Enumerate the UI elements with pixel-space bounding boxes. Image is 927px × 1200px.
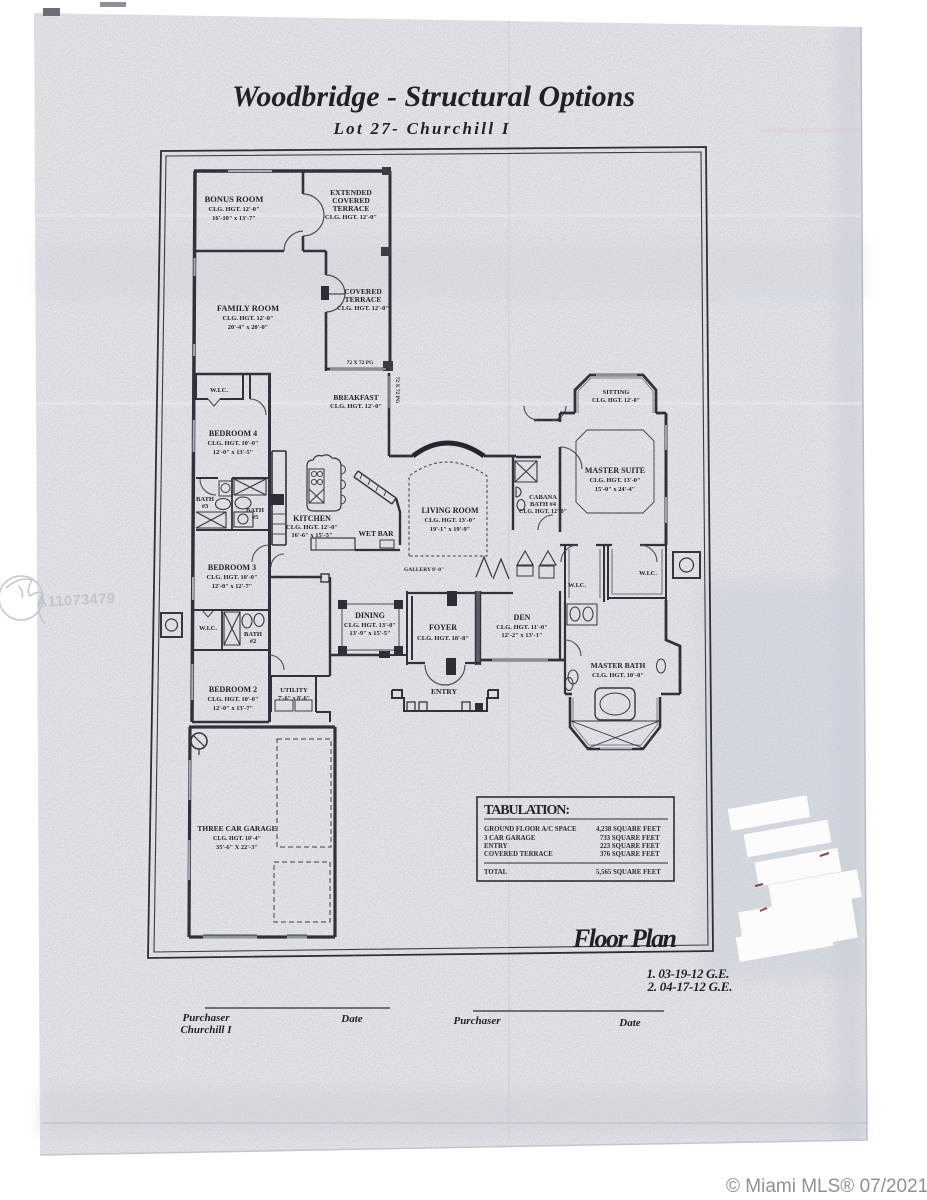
svg-text:CABANA: CABANA bbox=[529, 494, 557, 501]
svg-text:CLG. HGT. 11'-0": CLG. HGT. 11'-0" bbox=[496, 624, 548, 631]
svg-text:#2: #2 bbox=[250, 638, 257, 645]
svg-text:CLG. HGT. 10'-0": CLG. HGT. 10'-0" bbox=[207, 440, 258, 447]
svg-text:MASTER BATH: MASTER BATH bbox=[591, 661, 646, 670]
svg-text:TOTAL: TOTAL bbox=[484, 869, 508, 876]
svg-text:FOYER: FOYER bbox=[429, 623, 457, 632]
svg-text:© Miami MLS® 07/2021: © Miami MLS® 07/2021 bbox=[726, 1176, 927, 1197]
svg-text:BONUS ROOM: BONUS ROOM bbox=[205, 194, 264, 204]
svg-text:BATH: BATH bbox=[246, 507, 264, 514]
svg-text:BATH: BATH bbox=[244, 631, 262, 638]
svg-text:Date: Date bbox=[618, 1017, 641, 1029]
svg-text:35'-6" X 22'-3": 35'-6" X 22'-3" bbox=[216, 844, 258, 851]
svg-text:4,238 SQUARE FEET: 4,238 SQUARE FEET bbox=[596, 826, 661, 833]
svg-text:733 SQUARE FEET: 733 SQUARE FEET bbox=[600, 835, 660, 842]
svg-text:376 SQUARE FEET: 376 SQUARE FEET bbox=[600, 851, 660, 858]
svg-text:BATH: BATH bbox=[196, 496, 214, 503]
svg-text:W.I.C.: W.I.C. bbox=[639, 570, 657, 577]
svg-text:CLG. HGT. 12'-0": CLG. HGT. 12'-0" bbox=[330, 403, 382, 410]
svg-text:CLG. HGT. 12'-0": CLG. HGT. 12'-0" bbox=[208, 206, 259, 213]
svg-text:CLG. HGT. 12'-0": CLG. HGT. 12'-0" bbox=[286, 524, 338, 531]
svg-text:W.I.C.: W.I.C. bbox=[568, 582, 586, 589]
svg-text:2. 04-17-12 G.E.: 2. 04-17-12 G.E. bbox=[647, 979, 733, 994]
svg-text:CLG. HGT. 13'-0": CLG. HGT. 13'-0" bbox=[589, 477, 640, 484]
svg-text:GROUND FLOOR A/C SPACE: GROUND FLOOR A/C SPACE bbox=[484, 826, 577, 833]
svg-text:BATH #4: BATH #4 bbox=[530, 501, 557, 508]
svg-text:Purchaser: Purchaser bbox=[182, 1012, 230, 1024]
svg-text:THREE CAR GARAGE: THREE CAR GARAGE bbox=[197, 824, 276, 833]
svg-text:TABULATION:: TABULATION: bbox=[484, 803, 570, 818]
svg-text:CLG. HGT. 10'-0": CLG. HGT. 10'-0" bbox=[592, 672, 644, 679]
svg-text:13'-9" x 15'-5": 13'-9" x 15'-5" bbox=[349, 630, 390, 637]
svg-text:FAMILY ROOM: FAMILY ROOM bbox=[217, 303, 279, 313]
svg-text:Date: Date bbox=[340, 1013, 363, 1025]
svg-text:CLG. HGT. 12'-0": CLG. HGT. 12'-0" bbox=[337, 305, 389, 312]
svg-text:ENTRY: ENTRY bbox=[431, 687, 458, 696]
svg-text:19'-1" x 19'-9": 19'-1" x 19'-9" bbox=[430, 526, 470, 533]
svg-text:BEDROOM 3: BEDROOM 3 bbox=[208, 563, 256, 572]
svg-text:BREAKFAST: BREAKFAST bbox=[333, 393, 378, 402]
svg-text:7'-6" x 8'-6": 7'-6" x 8'-6" bbox=[278, 696, 310, 702]
svg-text:15'-0" x 24'-4": 15'-0" x 24'-4" bbox=[595, 486, 635, 493]
svg-text:ENTRY: ENTRY bbox=[484, 843, 508, 850]
svg-text:12'-0" x 13'-7": 12'-0" x 13'-7" bbox=[213, 705, 253, 712]
svg-text:12'-0" x 13'-5": 12'-0" x 13'-5" bbox=[213, 449, 253, 456]
svg-text:Floor Plan: Floor Plan bbox=[572, 924, 677, 953]
svg-text:Purchaser: Purchaser bbox=[453, 1015, 501, 1027]
svg-text:CLG. HGT. 10'-0": CLG. HGT. 10'-0" bbox=[207, 696, 258, 703]
svg-text:CLG. HGT. 13'-0": CLG. HGT. 13'-0" bbox=[344, 622, 396, 629]
svg-text:DEN: DEN bbox=[514, 613, 531, 622]
svg-text:TERRACE: TERRACE bbox=[345, 295, 382, 304]
svg-text:5,565 SQUARE FEET: 5,565 SQUARE FEET bbox=[596, 869, 661, 876]
svg-text:KITCHEN: KITCHEN bbox=[293, 514, 331, 523]
svg-text:BEDROOM 2: BEDROOM 2 bbox=[209, 685, 257, 694]
svg-text:W.I.C.: W.I.C. bbox=[210, 387, 228, 394]
svg-text:TERRACE: TERRACE bbox=[333, 204, 370, 213]
svg-text:COVERED TERRACE: COVERED TERRACE bbox=[484, 851, 553, 858]
svg-text:CLG. HGT. 12'-0": CLG. HGT. 12'-0" bbox=[325, 214, 377, 221]
svg-text:Churchill I: Churchill I bbox=[180, 1024, 232, 1036]
svg-text:CLG. HGT. 12'-0": CLG. HGT. 12'-0" bbox=[222, 315, 273, 322]
svg-text:BEDROOM 4: BEDROOM 4 bbox=[209, 429, 257, 438]
svg-text:16'-10" x 13'-7": 16'-10" x 13'-7" bbox=[212, 215, 256, 222]
svg-text:72 X 72 PG: 72 X 72 PG bbox=[394, 377, 400, 404]
svg-text:12'-0" x 12'-7": 12'-0" x 12'-7" bbox=[212, 583, 252, 590]
svg-text:SITTING: SITTING bbox=[603, 389, 630, 396]
svg-text:DINING: DINING bbox=[355, 611, 385, 620]
svg-text:3 CAR GARAGE: 3 CAR GARAGE bbox=[484, 835, 536, 842]
svg-text:WET BAR: WET BAR bbox=[358, 529, 394, 538]
svg-text:MASTER SUITE: MASTER SUITE bbox=[585, 466, 645, 475]
svg-text:W.I.C.: W.I.C. bbox=[199, 625, 217, 632]
svg-text:LIVING ROOM: LIVING ROOM bbox=[421, 506, 479, 515]
svg-text:Lot 27- Churchill I: Lot 27- Churchill I bbox=[333, 119, 510, 138]
svg-text:CLG. HGT. 13'-0": CLG. HGT. 13'-0" bbox=[424, 517, 475, 524]
svg-text:#3: #3 bbox=[202, 503, 209, 510]
svg-text:CLG. HGT. 12'-0": CLG. HGT. 12'-0" bbox=[592, 398, 640, 404]
svg-text:72 X 72 PG: 72 X 72 PG bbox=[347, 360, 374, 366]
svg-text:12'-2" x 13'-1": 12'-2" x 13'-1" bbox=[501, 632, 542, 639]
svg-text:Woodbridge - Structural Option: Woodbridge - Structural Options bbox=[232, 80, 636, 113]
svg-text:UTILITY: UTILITY bbox=[280, 687, 308, 694]
svg-text:20'-4" x 20'-0": 20'-4" x 20'-0" bbox=[228, 324, 268, 331]
svg-text:CLG. HGT. 10'-0": CLG. HGT. 10'-0" bbox=[206, 574, 257, 581]
svg-text:CLG. HGT. 10'-4": CLG. HGT. 10'-4" bbox=[213, 836, 261, 842]
svg-text:GALLERY 8'-0": GALLERY 8'-0" bbox=[404, 567, 444, 573]
svg-text:CLG. HGT. 18'-8": CLG. HGT. 18'-8" bbox=[417, 635, 469, 642]
svg-text:223 SQUARE FEET: 223 SQUARE FEET bbox=[600, 843, 660, 850]
